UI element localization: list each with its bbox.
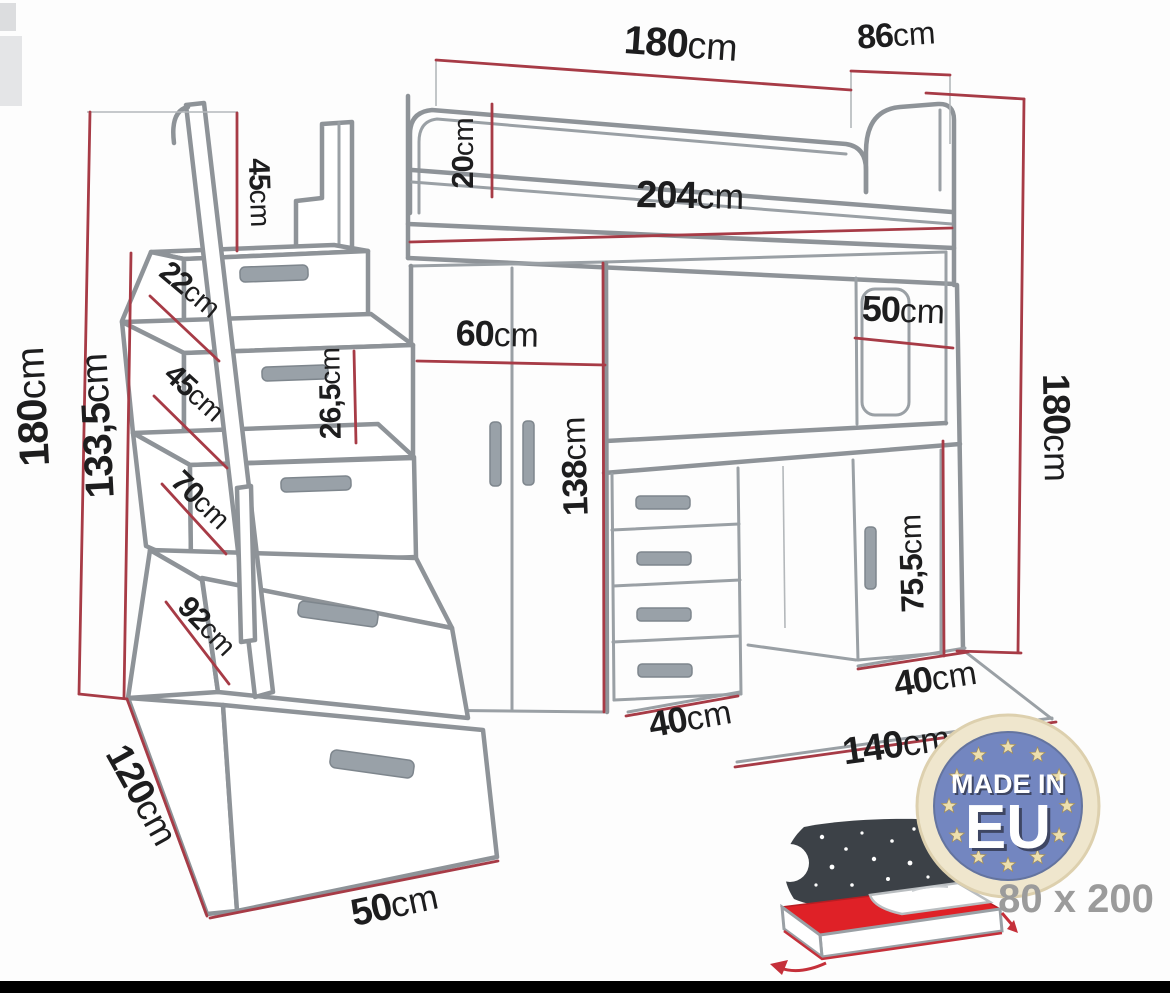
dim-right-height: 180cm — [1034, 373, 1078, 482]
edge-artifacts — [0, 3, 22, 106]
stair-drawer-handle — [240, 265, 308, 282]
dim-shelf-width: 50cm — [861, 288, 946, 332]
dim-step-face-height: 26,5cm — [313, 347, 348, 440]
cabinet-door-handle — [865, 527, 876, 589]
dim-bed-width-top: 86cm — [856, 13, 937, 56]
dim-total-height: 180cm — [5, 346, 58, 468]
dim-cabinet-height: 75,5cm — [891, 514, 930, 614]
dim-handrail-height: 45cm — [242, 158, 277, 228]
wardrobe-right-door-handle — [523, 421, 534, 485]
dim-bed-length-top: 180cm — [623, 18, 740, 70]
badge-eu-text: EU — [965, 793, 1051, 862]
furniture-dimension-diagram: 180cm 86cm 20cm 204cm 45cm 22cm 45cm 70c… — [0, 0, 1170, 993]
handrail-post — [237, 486, 255, 642]
desk-drawer-handle — [637, 552, 691, 565]
dim-total-length: 204cm — [636, 174, 745, 218]
desk-drawer-handle — [637, 608, 691, 621]
dim-wardrobe-width: 60cm — [455, 312, 539, 354]
stair-drawer-handle — [281, 476, 351, 492]
desk-drawer-handle — [638, 664, 692, 677]
desk-drawer-handle — [636, 496, 690, 509]
bottom-bar — [0, 981, 1170, 993]
dim-underbed-height: 138cm — [553, 416, 595, 517]
width-arrow — [780, 963, 826, 971]
dim-rail-height: 20cm — [445, 117, 480, 188]
diagram-canvas: 180cm 86cm 20cm 204cm 45cm 22cm 45cm 70c… — [0, 0, 1170, 993]
made-in-eu-badge: MADE IN MADE IN EU EU — [917, 715, 1099, 897]
wardrobe-left-door-handle — [490, 422, 501, 486]
extension-lines — [87, 60, 950, 144]
dim-platform-height: 133,5cm — [71, 352, 123, 499]
mattress-size-label: 80 x 200 — [998, 877, 1154, 921]
